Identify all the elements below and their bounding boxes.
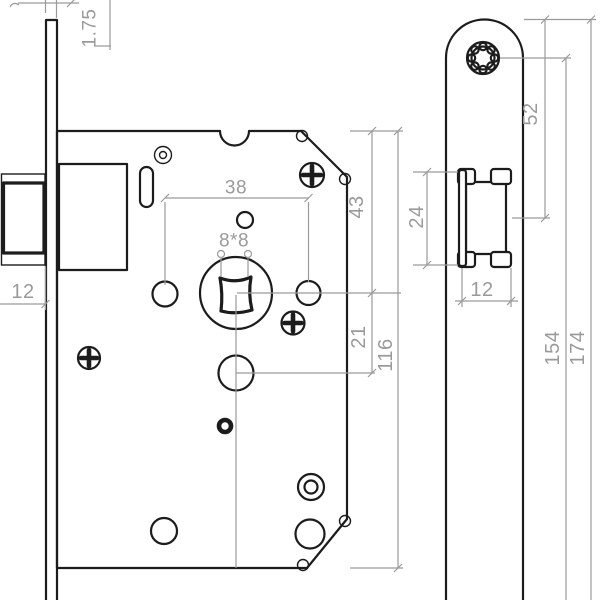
phillips-screw-left: [78, 347, 100, 369]
phillips-screw-top: [300, 163, 324, 187]
lock-technical-drawing: 1.75: [0, 0, 600, 600]
dim-screw-spacing-text: 154: [542, 331, 564, 366]
dim-body-height-text: 116: [375, 338, 397, 371]
dim-top-to-spindle-text: 43: [346, 195, 368, 218]
dim-latch-protrusion-text: 12: [11, 281, 34, 303]
dim-spindle-to-cylinder-text: 21: [348, 325, 370, 348]
dim-follower-spacing-text: 38: [225, 178, 247, 199]
dim-faceplate-thickness-text: 1.75: [80, 9, 101, 48]
latch-tab-bottom-right: [491, 252, 511, 267]
dim-latch-height-text: 24: [406, 205, 428, 228]
dim-top-to-latch-text: 52: [520, 102, 542, 125]
latch-profile: [458, 169, 511, 267]
dim-faceplate-length-text: 174: [567, 331, 589, 366]
latch-face-bar: [459, 170, 466, 266]
dim-spindle-square-text: 8*8: [219, 231, 249, 252]
latch-tab-top-right: [491, 169, 511, 184]
dim-latch-depth-text: 12: [470, 279, 493, 301]
phillips-screw-mid: [282, 312, 305, 335]
